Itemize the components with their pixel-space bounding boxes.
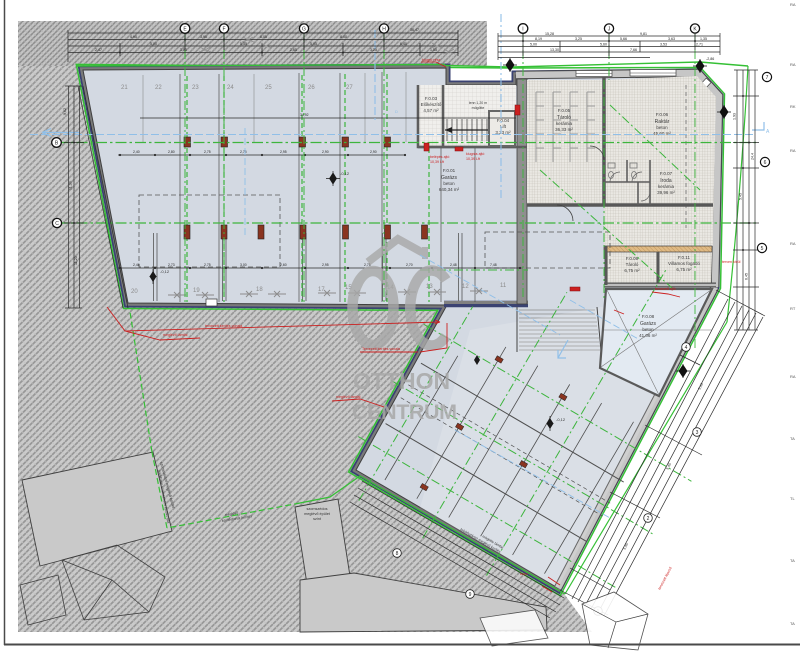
svg-text:beton: beton [656,125,668,130]
svg-text:8,00: 8,00 [340,35,347,39]
svg-text:11,20: 11,20 [74,256,78,265]
svg-text:6,45: 6,45 [745,273,749,280]
svg-text:5,00: 5,00 [150,42,157,46]
svg-text:meglévő támfal: meglévő támfal [163,333,188,337]
svg-text:11,33: 11,33 [69,181,73,190]
svg-text:szint: szint [313,517,322,521]
svg-text:I: I [522,27,523,33]
svg-text:lenn 1,20 m: lenn 1,20 m [469,101,487,105]
svg-text:9: 9 [469,592,472,598]
svg-text:8,19: 8,19 [535,37,542,41]
svg-text:7,48: 7,48 [490,263,497,267]
svg-text:1,35: 1,35 [700,37,707,41]
svg-text:meglévő támfal: meglévő támfal [336,395,361,399]
svg-text:kiugrás ajtó: kiugrás ajtó [466,152,484,156]
svg-text:45,60 m²: 45,60 m² [653,131,671,136]
svg-text:RA: RA [790,62,796,67]
svg-text:F.0.11: F.0.11 [678,255,690,260]
svg-text:kiugró rész: kiugró rész [422,58,441,62]
svg-text:2,90: 2,90 [370,150,377,154]
svg-text:10,39 Lft: 10,39 Lft [430,160,444,164]
svg-text:5,00: 5,00 [530,43,537,47]
svg-text:2,75: 2,75 [240,150,247,154]
svg-text:2,95: 2,95 [322,263,329,267]
svg-text:39,96 m²: 39,96 m² [657,190,675,195]
svg-text:24,4: 24,4 [751,153,755,160]
svg-text:F.0.07: F.0.07 [660,171,673,176]
svg-text:RT: RT [790,306,796,311]
svg-text:-0,12: -0,12 [556,417,566,422]
svg-text:terven kívül: terven kívül [722,260,741,264]
svg-text:3,80: 3,80 [180,48,187,52]
svg-text:F: F [222,27,225,33]
svg-text:6: 6 [764,160,767,166]
svg-text:17: 17 [318,287,325,293]
svg-text:tervezett kerítés vonala: tervezett kerítés vonala [205,324,242,328]
svg-text:OTTHON: OTTHON [353,368,450,394]
svg-text:1,93: 1,93 [733,113,737,120]
svg-text:RA: RA [790,148,796,153]
svg-text:2,70: 2,70 [406,263,413,267]
svg-text:CENTRUM: CENTRUM [352,400,457,424]
svg-text:24: 24 [227,85,234,91]
svg-text:C: C [302,248,305,253]
svg-text:F.0.01: F.0.01 [443,168,456,173]
svg-text:belépés ajtó: belépés ajtó [430,155,449,159]
svg-text:640,34 m²: 640,34 m² [439,187,460,192]
svg-text:RK: RK [790,104,796,109]
svg-text:2,71: 2,71 [696,43,703,47]
svg-text:6,40: 6,40 [400,42,407,46]
svg-text:13: 13 [426,284,433,290]
svg-text:15,28: 15,28 [545,32,554,36]
svg-text:10,39 Lft: 10,39 Lft [466,157,480,161]
svg-text:26: 26 [308,85,315,91]
svg-text:F.0.08: F.0.08 [642,314,655,319]
svg-text:2,60: 2,60 [280,263,287,267]
svg-text:beton: beton [443,181,455,186]
svg-text:2,48: 2,48 [450,263,457,267]
svg-text:szomszédos: szomszédos [306,507,327,511]
svg-text:36,47: 36,47 [410,28,419,32]
svg-text:23: 23 [192,85,199,91]
svg-text:5,35: 5,35 [240,42,247,46]
svg-text:F.0.09: F.0.09 [626,256,639,261]
svg-text:2,47: 2,47 [95,48,102,52]
svg-text:3,95: 3,95 [200,35,207,39]
svg-text:Előkészítő: Előkészítő [421,102,442,107]
svg-text:TA: TA [790,436,795,441]
svg-text:3,53: 3,53 [660,43,667,47]
svg-text:TA: TA [790,558,795,563]
svg-text:RA: RA [790,374,796,379]
svg-text:meglévő épület: meglévő épület [304,512,331,516]
svg-text:-2,86: -2,86 [706,57,714,61]
svg-text:2,75: 2,75 [204,150,211,154]
svg-text:RA: RA [790,2,796,7]
svg-text:F.0.03: F.0.03 [425,96,438,101]
svg-text:kapu: kapu [520,572,528,576]
svg-text:H: H [382,27,386,33]
svg-text:41,06 m²: 41,06 m² [639,333,657,338]
svg-text:18: 18 [256,287,263,293]
svg-text:3,25: 3,25 [370,48,377,52]
svg-text:TL: TL [790,496,795,501]
svg-text:G: G [302,27,306,33]
svg-text:Villamos fogadó: Villamos fogadó [668,261,700,266]
svg-text:9,81: 9,81 [640,32,647,36]
svg-text:Tároló: Tároló [626,262,639,267]
svg-text:D: D [395,109,398,114]
svg-text:19: 19 [193,288,200,294]
svg-text:6,75 m²: 6,75 m² [676,267,692,272]
svg-text:9,62: 9,62 [63,108,67,115]
svg-text:2,90: 2,90 [322,150,329,154]
svg-text:4: 4 [685,345,688,351]
svg-text:5,66: 5,66 [620,37,627,41]
svg-text:3: 3 [696,430,699,436]
svg-text:F.0.05: F.0.05 [558,108,571,113]
svg-text:5,45: 5,45 [739,193,743,200]
svg-text:4,90: 4,90 [130,35,137,39]
svg-text:4,57 m²: 4,57 m² [423,108,439,113]
svg-text:22: 22 [155,85,162,91]
svg-text:2,46: 2,46 [133,263,140,267]
svg-text:7,66: 7,66 [630,48,637,52]
svg-text:3,63: 3,63 [668,37,675,41]
svg-text:12: 12 [462,284,469,290]
svg-text:21: 21 [121,85,128,91]
svg-text:5: 5 [761,246,764,252]
svg-text:2: 2 [647,516,650,522]
svg-text:36,33 m²: 36,33 m² [555,127,573,132]
svg-text:5,05: 5,05 [310,42,317,46]
svg-text:7: 7 [766,75,769,81]
svg-text:2,95: 2,95 [280,150,287,154]
svg-text:beton: beton [642,327,654,332]
svg-text:RA: RA [790,241,796,246]
svg-text:2,73: 2,73 [168,263,175,267]
svg-text:2,75: 2,75 [204,263,211,267]
svg-text:8,05: 8,05 [260,35,267,39]
svg-text:5,60: 5,60 [600,43,607,47]
svg-text:8: 8 [396,551,399,557]
svg-text:kerámia: kerámia [658,184,675,189]
svg-text:Tervezett kerítés vonala: Tervezett kerítés vonala [362,347,400,351]
svg-text:2,65: 2,65 [290,48,297,52]
svg-text:3,25: 3,25 [575,37,582,41]
svg-text:11: 11 [500,283,507,289]
svg-text:6,75 m²: 6,75 m² [624,268,640,273]
svg-text:20: 20 [131,289,138,295]
svg-text:F.0.06: F.0.06 [656,112,669,117]
svg-text:1,55: 1,55 [430,48,437,52]
svg-text:-0,12: -0,12 [340,171,350,176]
svg-text:C: C [55,221,59,227]
svg-text:3,00: 3,00 [240,263,247,267]
svg-text:2,80: 2,80 [168,150,175,154]
svg-text:-0,12: -0,12 [160,269,170,274]
svg-text:TA: TA [790,621,795,626]
svg-text:2,40: 2,40 [133,150,140,154]
svg-text:13,30: 13,30 [550,48,559,52]
svg-text:mögötte: mögötte [472,106,485,110]
svg-text:25: 25 [265,85,272,91]
svg-text:tervezett ajtó: tervezett ajtó [655,287,676,291]
svg-text:kerámia: kerámia [556,121,573,126]
svg-text:27: 27 [346,85,353,91]
svg-text:F.0.04: F.0.04 [497,118,510,123]
